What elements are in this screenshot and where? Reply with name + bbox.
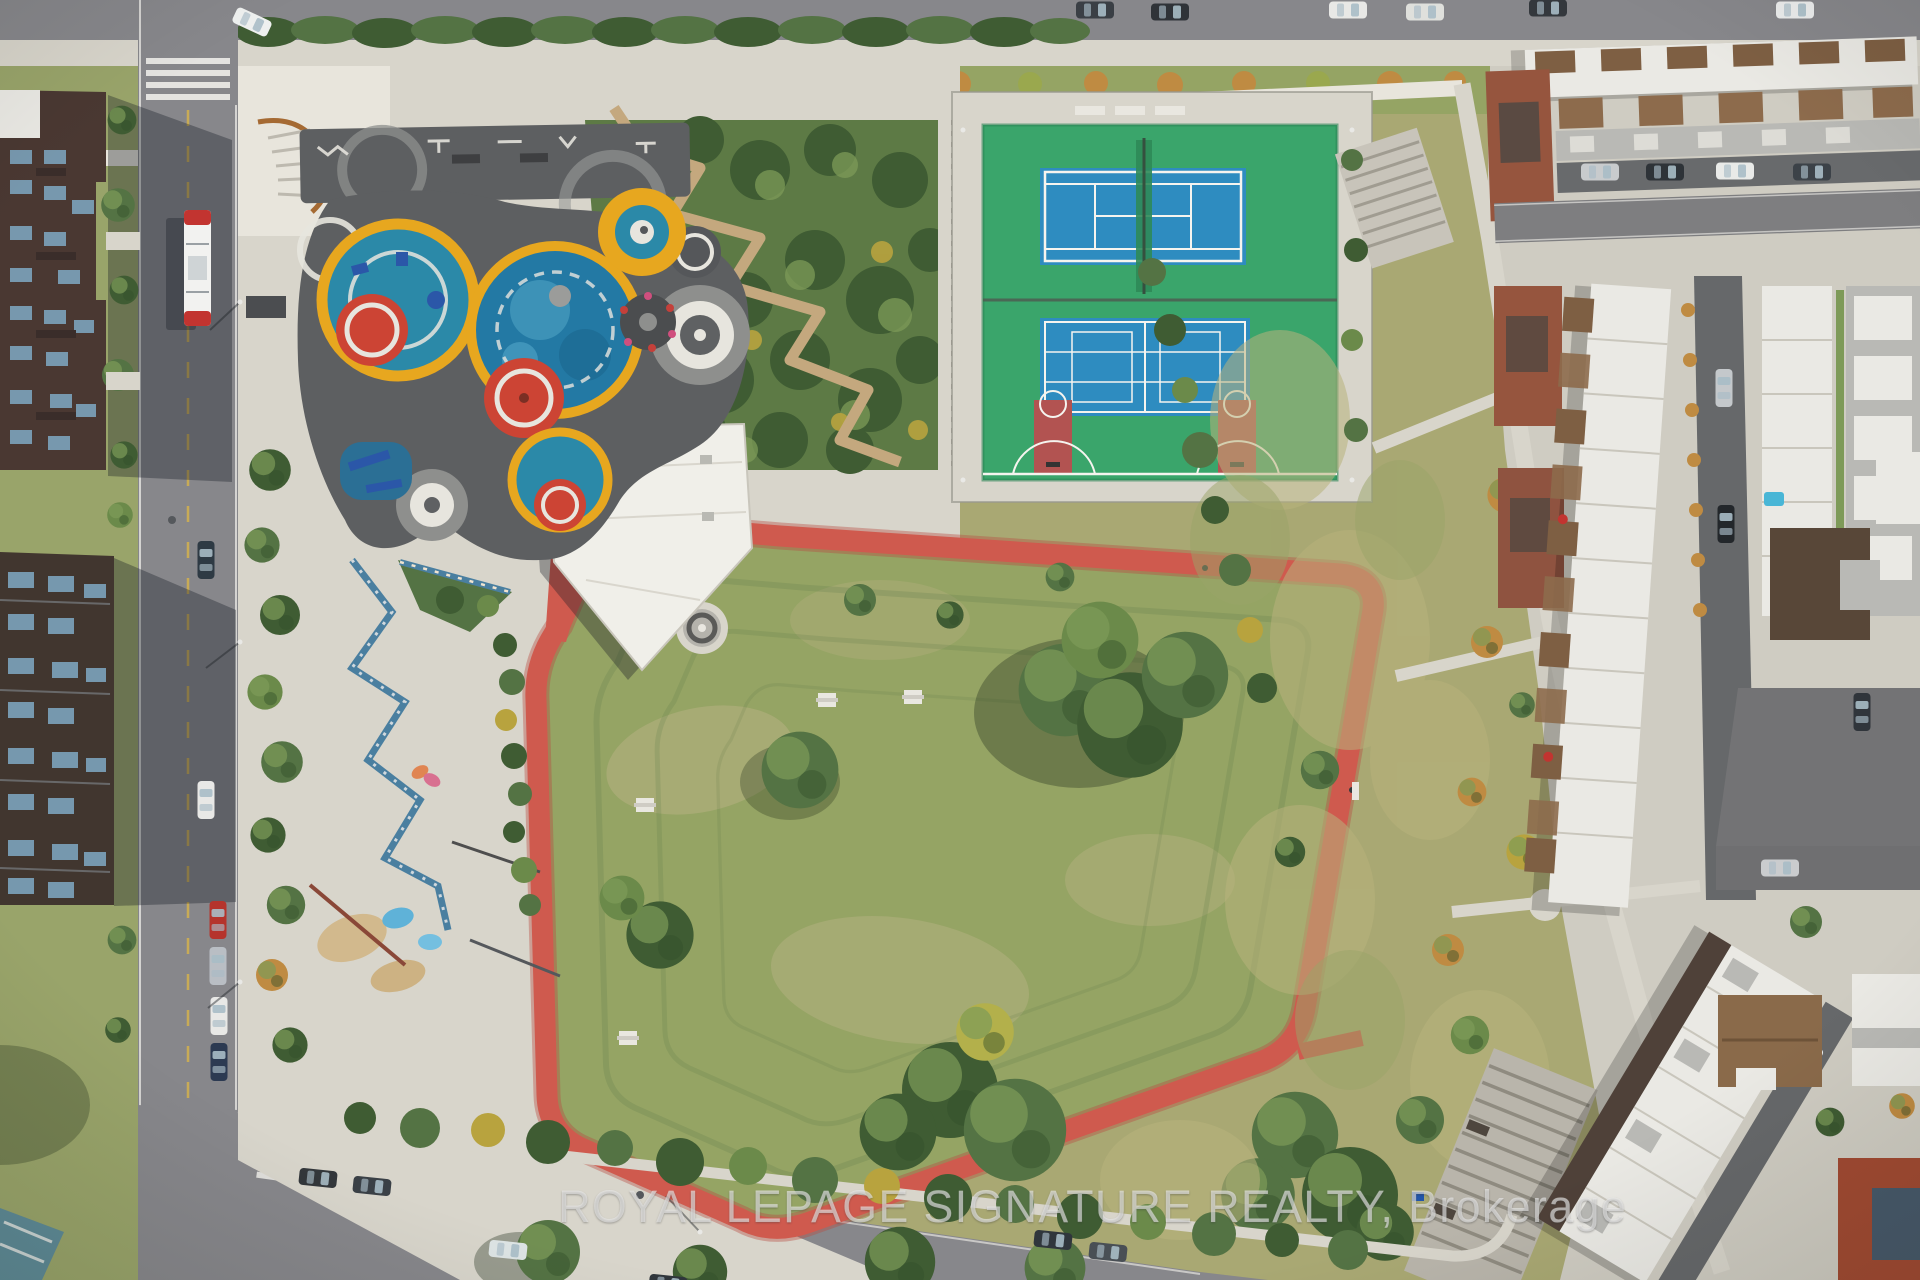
watermark-text: ROYAL LEPAGE SIGNATURE REALTY, Brokerage <box>558 1181 1627 1233</box>
vignette <box>0 0 1920 1280</box>
aerial-scene <box>0 0 1920 1280</box>
aerial-photo: ROYAL LEPAGE SIGNATURE REALTY, Brokerage <box>0 0 1920 1280</box>
